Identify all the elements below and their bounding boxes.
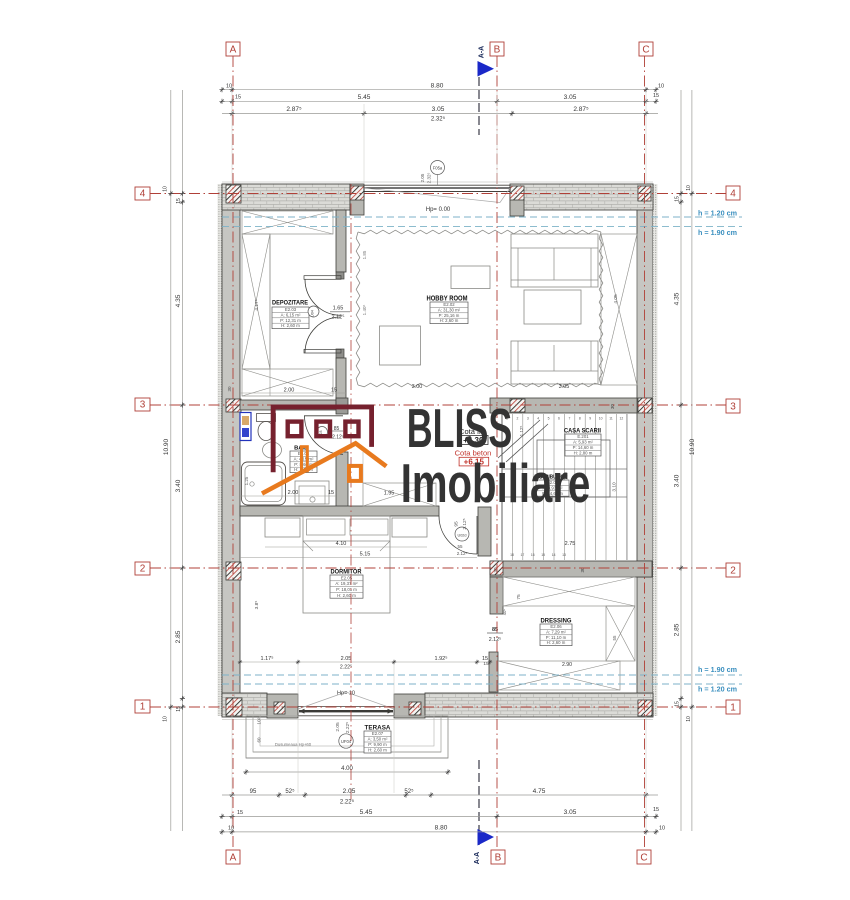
svg-text:A: 5,93 m²: A: 5,93 m²: [573, 440, 593, 445]
svg-text:H: 2,60 m: H: 2,60 m: [281, 323, 300, 328]
svg-text:3.05: 3.05: [564, 809, 577, 816]
svg-text:1.17⁵: 1.17⁵: [261, 655, 274, 662]
svg-text:95: 95: [250, 789, 257, 795]
svg-text:E.201: E.201: [577, 434, 589, 439]
svg-text:2.90: 2.90: [562, 662, 572, 668]
svg-text:10.90: 10.90: [689, 438, 696, 455]
svg-text:15: 15: [675, 196, 681, 202]
svg-text:DEPOZITARE: DEPOZITARE: [272, 300, 309, 307]
svg-text:4.75: 4.75: [533, 788, 546, 795]
svg-text:10: 10: [686, 716, 692, 722]
svg-text:8.80: 8.80: [431, 83, 444, 90]
svg-text:5.45: 5.45: [358, 94, 371, 101]
svg-text:P: 25,16 m: P: 25,16 m: [439, 313, 460, 318]
svg-text:1.25: 1.25: [244, 476, 249, 485]
svg-text:3.00: 3.00: [412, 384, 423, 390]
svg-text:14: 14: [552, 553, 556, 557]
svg-text:55: 55: [457, 544, 463, 549]
svg-text:15: 15: [653, 93, 659, 99]
svg-text:75: 75: [516, 594, 522, 600]
svg-text:P: 12,31 m: P: 12,31 m: [280, 318, 301, 323]
svg-text:2.87⁵: 2.87⁵: [286, 106, 302, 113]
svg-text:3.05: 3.05: [432, 106, 445, 113]
svg-text:A: A: [230, 852, 237, 863]
svg-text:Hp= 10: Hp= 10: [337, 691, 355, 697]
svg-text:15: 15: [653, 807, 659, 813]
svg-text:2.12⁵: 2.12⁵: [332, 314, 345, 321]
svg-text:15: 15: [237, 810, 243, 816]
svg-text:15: 15: [331, 388, 337, 394]
svg-text:U02d: U02d: [457, 534, 466, 538]
svg-text:H: 2,60 m: H: 2,60 m: [547, 640, 566, 645]
svg-text:10: 10: [659, 826, 665, 832]
svg-text:U04: U04: [311, 310, 315, 317]
svg-text:2.05: 2.05: [343, 788, 356, 795]
svg-text:4.35: 4.35: [674, 292, 681, 305]
svg-text:3.40: 3.40: [175, 479, 182, 492]
svg-text:A: 19,37 m²: A: 19,37 m²: [335, 581, 358, 586]
svg-text:h = 1.20 cm: h = 1.20 cm: [698, 209, 737, 218]
svg-text:3: 3: [730, 401, 736, 412]
svg-text:1.40⁵: 1.40⁵: [362, 305, 367, 316]
svg-text:3.05: 3.05: [564, 94, 577, 101]
svg-text:60: 60: [257, 737, 262, 743]
svg-text:2.32⁵: 2.32⁵: [431, 116, 446, 123]
svg-text:16: 16: [531, 553, 535, 557]
svg-text:2: 2: [140, 563, 146, 574]
svg-text:52⁵: 52⁵: [285, 788, 295, 795]
svg-text:7: 7: [568, 417, 570, 421]
svg-text:1: 1: [140, 701, 146, 712]
svg-text:3.40: 3.40: [674, 474, 681, 487]
svg-text:C: C: [642, 44, 649, 55]
svg-text:5: 5: [548, 417, 550, 421]
svg-text:2.05: 2.05: [420, 173, 425, 182]
svg-text:10: 10: [599, 417, 603, 421]
svg-text:6: 6: [558, 417, 560, 421]
svg-text:2.32⁵: 2.32⁵: [427, 173, 432, 184]
svg-text:A-A: A-A: [479, 46, 486, 58]
svg-text:10⁵: 10⁵: [257, 717, 262, 724]
svg-text:10: 10: [686, 185, 692, 191]
svg-text:2.12⁵: 2.12⁵: [332, 435, 344, 441]
svg-text:10.90: 10.90: [163, 438, 170, 455]
svg-text:h = 1.90 cm: h = 1.90 cm: [698, 665, 737, 674]
svg-text:5.45: 5.45: [360, 809, 373, 816]
svg-text:2.22⁵: 2.22⁵: [340, 799, 355, 806]
svg-text:4.10: 4.10: [336, 541, 347, 547]
svg-text:1.12⁵: 1.12⁵: [519, 426, 524, 437]
svg-text:B: B: [494, 44, 501, 55]
svg-text:2.00: 2.00: [284, 388, 295, 394]
svg-text:8.80: 8.80: [435, 825, 448, 832]
svg-text:4: 4: [730, 188, 736, 199]
svg-text:E2.06: E2.06: [550, 624, 562, 629]
svg-text:H: 2,60 m: H: 2,60 m: [440, 318, 459, 323]
svg-text:15: 15: [176, 198, 182, 204]
svg-text:P: 14,60 m: P: 14,60 m: [573, 445, 594, 450]
svg-text:2.00: 2.00: [288, 490, 299, 496]
svg-text:2: 2: [730, 565, 736, 576]
svg-text:1: 1: [730, 702, 736, 713]
svg-text:1.85: 1.85: [362, 250, 367, 259]
svg-text:C: C: [640, 852, 647, 863]
svg-text:A: 31,30 m²: A: 31,30 m²: [438, 307, 461, 312]
svg-text:10: 10: [228, 826, 234, 832]
svg-text:10: 10: [226, 84, 232, 90]
svg-text:3.05: 3.05: [559, 384, 570, 390]
svg-text:A-A: A-A: [474, 852, 481, 864]
svg-text:h = 1.90 cm: h = 1.90 cm: [698, 228, 737, 237]
svg-text:95: 95: [454, 521, 460, 527]
svg-text:4.17⁵: 4.17⁵: [254, 299, 260, 310]
svg-text:15: 15: [483, 661, 489, 667]
svg-text:18: 18: [510, 553, 514, 557]
svg-text:1.92⁵: 1.92⁵: [435, 655, 448, 662]
svg-text:3.8⁵: 3.8⁵: [254, 601, 260, 610]
svg-text:2.75: 2.75: [565, 541, 576, 547]
svg-text:A: 6,15 m²: A: 6,15 m²: [281, 312, 301, 317]
svg-text:2.05: 2.05: [341, 656, 352, 662]
svg-text:4.05: 4.05: [613, 294, 619, 304]
svg-text:2.87⁵: 2.87⁵: [573, 106, 589, 113]
svg-text:3: 3: [527, 417, 529, 421]
svg-text:UF04: UF04: [341, 739, 352, 744]
svg-text:2.22⁵: 2.22⁵: [345, 722, 351, 733]
svg-text:10: 10: [163, 716, 169, 722]
svg-text:Imobiliare: Imobiliare: [401, 452, 591, 514]
svg-text:10: 10: [658, 84, 664, 90]
svg-text:55: 55: [612, 635, 617, 641]
svg-text:3: 3: [140, 399, 146, 410]
svg-text:P: 9,90 m: P: 9,90 m: [368, 742, 387, 747]
svg-text:30: 30: [610, 404, 615, 410]
svg-text:15: 15: [328, 490, 334, 496]
svg-text:E2.02: E2.02: [443, 302, 455, 307]
svg-text:2.85: 2.85: [674, 623, 681, 636]
svg-text:F05a: F05a: [433, 166, 443, 171]
svg-text:A: A: [230, 44, 237, 55]
svg-text:15: 15: [176, 706, 182, 712]
svg-text:15: 15: [675, 701, 681, 707]
svg-text:17: 17: [521, 553, 525, 557]
svg-text:h = 1.20 cm: h = 1.20 cm: [698, 685, 737, 694]
svg-text:15: 15: [235, 95, 241, 101]
svg-text:A: 7,29 m²: A: 7,29 m²: [546, 629, 566, 634]
svg-text:1.95: 1.95: [384, 491, 395, 497]
svg-text:E2.03: E2.03: [285, 307, 297, 312]
svg-text:1.65: 1.65: [333, 306, 344, 312]
svg-text:30: 30: [227, 386, 232, 392]
svg-text:P: 11,10 m: P: 11,10 m: [546, 635, 567, 640]
svg-text:10: 10: [163, 186, 169, 192]
svg-text:E2.07: E2.07: [372, 731, 384, 736]
svg-text:2: 2: [516, 417, 518, 421]
svg-text:52⁵: 52⁵: [404, 788, 414, 795]
svg-text:8: 8: [579, 417, 581, 421]
svg-text:B: B: [495, 852, 502, 863]
svg-text:13: 13: [562, 553, 566, 557]
svg-text:15: 15: [541, 553, 545, 557]
svg-text:3.10: 3.10: [612, 482, 618, 492]
svg-text:4: 4: [537, 417, 539, 421]
svg-text:40⁵: 40⁵: [502, 609, 507, 616]
svg-text:BLISS: BLISS: [407, 397, 513, 459]
svg-text:2.22⁵: 2.22⁵: [340, 665, 352, 671]
svg-text:H: 2,60 m: H: 2,60 m: [368, 748, 387, 753]
svg-text:9: 9: [589, 417, 591, 421]
svg-text:5.15: 5.15: [360, 552, 371, 558]
svg-text:2.85: 2.85: [175, 630, 182, 643]
svg-text:4.00: 4.00: [341, 766, 353, 772]
svg-text:2.12⁵: 2.12⁵: [462, 518, 468, 529]
svg-text:11: 11: [609, 417, 613, 421]
svg-text:4.35: 4.35: [175, 294, 182, 307]
svg-text:A: 3,50 m²: A: 3,50 m²: [368, 737, 388, 742]
svg-text:H: 2,60 m: H: 2,60 m: [337, 593, 356, 598]
svg-text:2.12⁵: 2.12⁵: [489, 637, 502, 643]
svg-text:Hp= 0.00: Hp= 0.00: [426, 207, 451, 213]
svg-text:12: 12: [620, 417, 624, 421]
svg-text:2.12⁵: 2.12⁵: [457, 551, 468, 556]
svg-text:4: 4: [140, 188, 146, 199]
svg-text:A: 4,15 m²: A: 4,15 m²: [294, 456, 314, 461]
svg-text:2.05: 2.05: [335, 722, 341, 732]
svg-text:Dusumeaua Hp+60: Dusumeaua Hp+60: [275, 742, 312, 747]
svg-text:P: 18,01 m: P: 18,01 m: [336, 587, 357, 592]
